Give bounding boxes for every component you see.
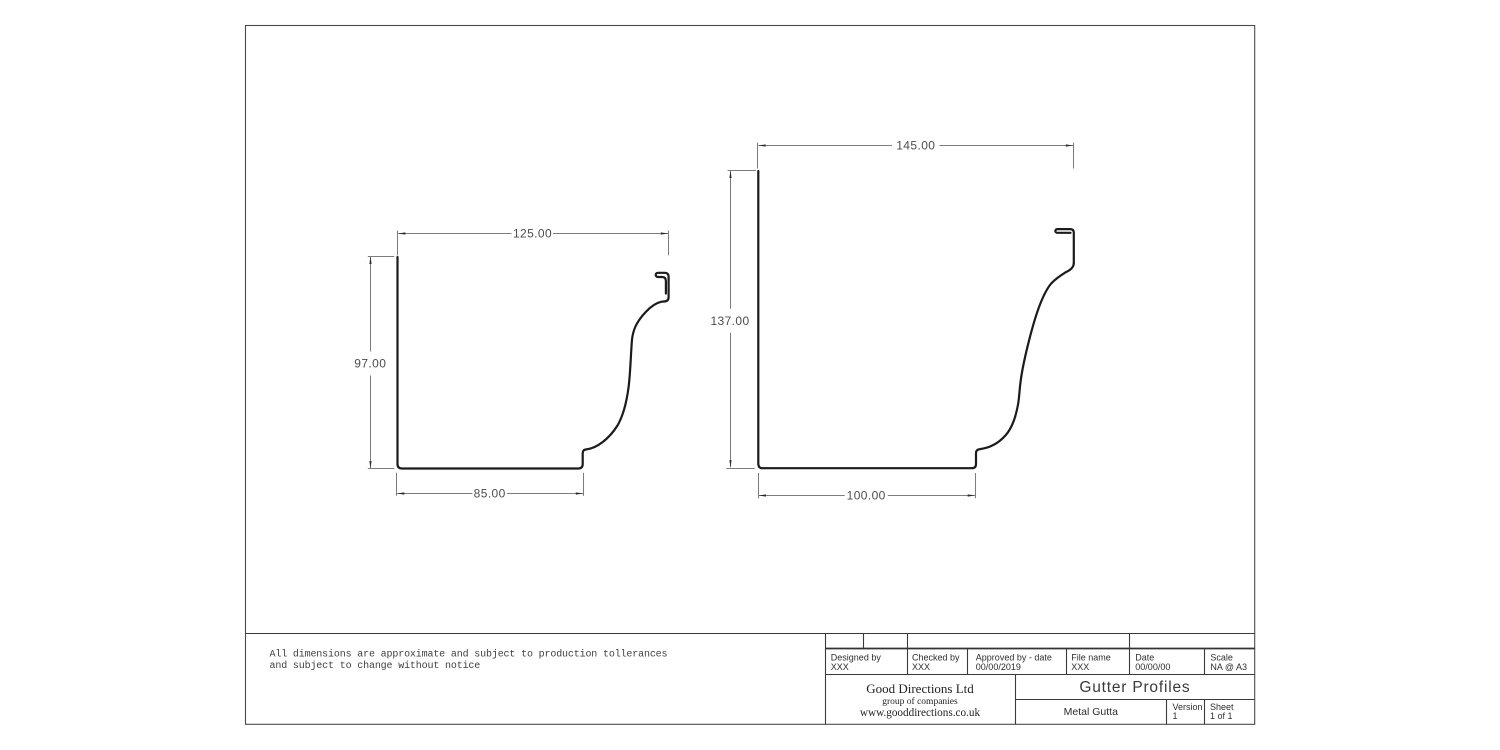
- svg-text:1 of 1: 1 of 1: [1210, 711, 1233, 721]
- svg-text:85.00: 85.00: [474, 486, 506, 500]
- svg-text:www.gooddirections.co.uk: www.gooddirections.co.uk: [860, 707, 981, 719]
- svg-text:group of companies: group of companies: [882, 696, 958, 707]
- svg-text:XXX: XXX: [831, 662, 849, 672]
- svg-text:00/00/00: 00/00/00: [1135, 662, 1170, 672]
- svg-text:NA @ A3: NA @ A3: [1210, 662, 1247, 672]
- svg-text:and subject to change without: and subject to change without notice: [270, 660, 481, 672]
- svg-text:XXX: XXX: [912, 662, 930, 672]
- svg-text:97.00: 97.00: [354, 357, 386, 371]
- svg-text:1: 1: [1173, 711, 1178, 721]
- svg-text:XXX: XXX: [1071, 662, 1089, 672]
- svg-text:00/00/2019: 00/00/2019: [976, 662, 1021, 672]
- svg-text:Gutter Profiles: Gutter Profiles: [1079, 679, 1190, 696]
- svg-text:137.00: 137.00: [710, 314, 749, 328]
- svg-text:All dimensions are approximate: All dimensions are approximate and subje…: [270, 648, 668, 660]
- svg-text:Good Directions Ltd: Good Directions Ltd: [866, 681, 974, 696]
- svg-text:125.00: 125.00: [513, 227, 552, 241]
- svg-text:Metal Gutta: Metal Gutta: [1064, 706, 1118, 718]
- svg-text:100.00: 100.00: [847, 489, 886, 503]
- svg-text:145.00: 145.00: [896, 138, 935, 152]
